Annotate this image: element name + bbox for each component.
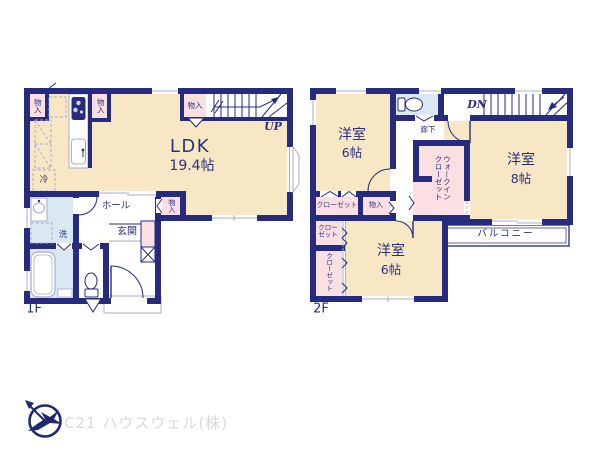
sliding-door-hall-ldk <box>99 191 156 197</box>
door-toilet-2f <box>415 115 434 121</box>
entrance-door <box>111 266 147 304</box>
door-storage-hall <box>156 199 162 213</box>
window-top <box>152 88 178 94</box>
room-east-size: 8帖 <box>511 172 531 186</box>
storage-topleft-label: 物入 <box>33 99 41 114</box>
closet-west-lower-label: クローゼット <box>324 253 331 292</box>
room-south-label: 洋室 <box>377 244 405 260</box>
stairs-area <box>206 94 287 117</box>
floorplan-canvas: 物入 物入 物入 物入 LDK 19.4帖 冷 洗 ホール 玄関 UP 1F 洋… <box>0 0 600 450</box>
shoe-cabinet <box>141 221 155 247</box>
toilet-vent-mark <box>85 299 101 312</box>
wic-low-wall-dashed <box>464 201 470 215</box>
window-south-bottom <box>362 296 414 302</box>
storage-hall-label: 物入 <box>167 199 175 213</box>
ldk-label: LDK <box>170 137 210 157</box>
room-nw-size: 6帖 <box>342 146 362 160</box>
room-nw-label: 洋室 <box>338 128 366 144</box>
window-stairs-top <box>515 88 542 94</box>
window-west-wash <box>24 208 30 228</box>
window-toilet-top <box>419 88 441 94</box>
ldk-size-label: 19.4帖 <box>169 159 214 175</box>
storage-stairs-label: 物入 <box>188 102 203 110</box>
window-west-bath <box>24 271 30 291</box>
fridge-label: 冷 <box>40 176 49 186</box>
tall-shoe-cabinet-x <box>141 247 155 262</box>
floorplan-drawing <box>0 0 600 450</box>
wash-label: 洗 <box>59 231 68 241</box>
balcony-sliding-door <box>492 219 542 225</box>
bay-window <box>287 147 299 192</box>
corridor-label: 廊下 <box>421 126 436 134</box>
window-nw-top <box>336 88 366 94</box>
door-toilet <box>82 243 100 250</box>
room-east-label: 洋室 <box>507 153 535 169</box>
door-storage-2f <box>389 201 396 214</box>
storage-2f-label: 物入 <box>369 202 383 210</box>
hall-label: ホール <box>102 202 131 213</box>
stairs-down-label: DN <box>467 99 487 111</box>
window-nw-west <box>310 100 316 125</box>
closet-nw-label: クローゼット <box>317 202 358 210</box>
stairs-up-label: UP <box>264 121 282 133</box>
company-logo-icon <box>25 400 62 437</box>
room-south-size: 6帖 <box>381 263 401 277</box>
window-ldk-south <box>212 215 257 221</box>
closet-nw-doors <box>320 191 356 197</box>
door-bath <box>56 243 72 250</box>
walkin-closet-label: ウォークインクローゼット <box>434 156 451 201</box>
toilet-icon-1f <box>85 273 98 297</box>
toilet-icon-2f <box>398 98 423 111</box>
entrance-label: 玄関 <box>117 226 137 237</box>
stove-icon <box>72 97 86 120</box>
company-name: C21 ハウスウェル(株) <box>64 412 228 433</box>
floor1-label: 1F <box>26 303 42 318</box>
window-east-right <box>567 148 573 176</box>
closet-west-upper-label: クローゼット <box>318 225 338 240</box>
floor2-label: 2F <box>313 303 329 318</box>
door-washroom <box>73 197 97 215</box>
floor1-plan <box>24 83 299 313</box>
washbasin-icon <box>31 198 47 221</box>
balcony-label: バルコニー <box>477 230 534 241</box>
kitchen-counter-icon <box>69 94 88 168</box>
storage-kitchen-label: 物入 <box>96 99 104 114</box>
